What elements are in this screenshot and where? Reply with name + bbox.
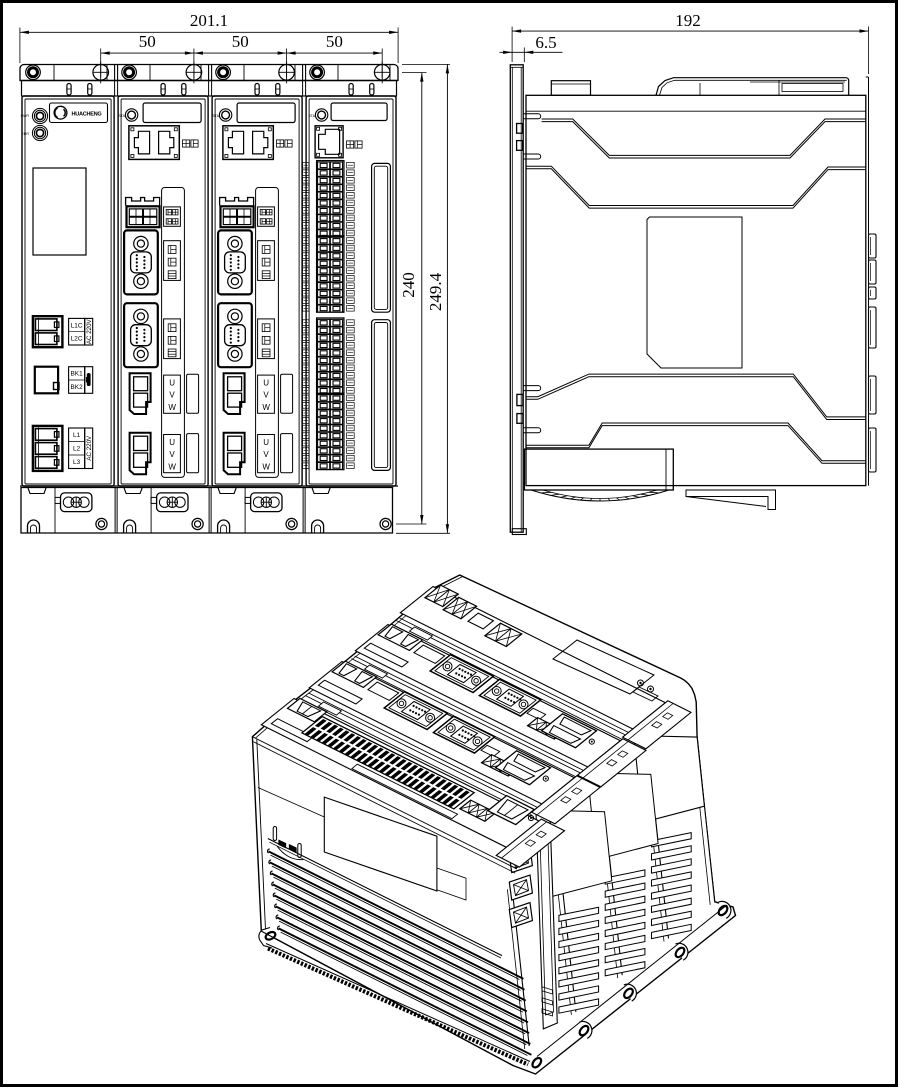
svg-text:W: W <box>262 403 270 412</box>
svg-text:L2C: L2C <box>71 336 83 343</box>
svg-text:U: U <box>169 438 175 447</box>
svg-text:AC 220V: AC 220V <box>86 435 93 461</box>
svg-text:W: W <box>262 462 270 471</box>
svg-text:U: U <box>169 379 175 388</box>
svg-text:STA: STA <box>212 114 219 118</box>
svg-text:L3: L3 <box>73 459 81 466</box>
svg-text:W: W <box>168 462 176 471</box>
svg-text:STA: STA <box>118 114 125 118</box>
svg-text:V: V <box>169 391 175 400</box>
svg-text:V: V <box>169 450 175 459</box>
svg-text:V: V <box>263 450 269 459</box>
svg-text:240: 240 <box>399 272 418 298</box>
svg-text:249.4: 249.4 <box>426 272 445 311</box>
svg-text:BK1: BK1 <box>71 371 84 378</box>
svg-text:L1: L1 <box>73 432 81 439</box>
svg-text:U: U <box>263 379 269 388</box>
svg-text:50: 50 <box>326 32 343 51</box>
svg-text:U: U <box>263 438 269 447</box>
svg-text:6.5: 6.5 <box>535 33 556 52</box>
svg-text:201.1: 201.1 <box>190 11 228 30</box>
svg-text:W: W <box>168 403 176 412</box>
svg-text:AC 220V: AC 220V <box>86 318 93 344</box>
svg-text:PWR: PWR <box>21 114 30 118</box>
svg-text:BK2: BK2 <box>71 384 84 391</box>
svg-text:50: 50 <box>139 32 156 51</box>
svg-text:L1C: L1C <box>71 322 83 329</box>
svg-text:ERR: ERR <box>21 132 29 136</box>
svg-text:V: V <box>263 391 269 400</box>
svg-text:STA: STA <box>308 114 315 118</box>
svg-text:L2: L2 <box>73 446 81 453</box>
svg-text:HUACHENG: HUACHENG <box>72 111 102 117</box>
svg-text:50: 50 <box>232 32 249 51</box>
svg-text:192: 192 <box>675 11 701 30</box>
